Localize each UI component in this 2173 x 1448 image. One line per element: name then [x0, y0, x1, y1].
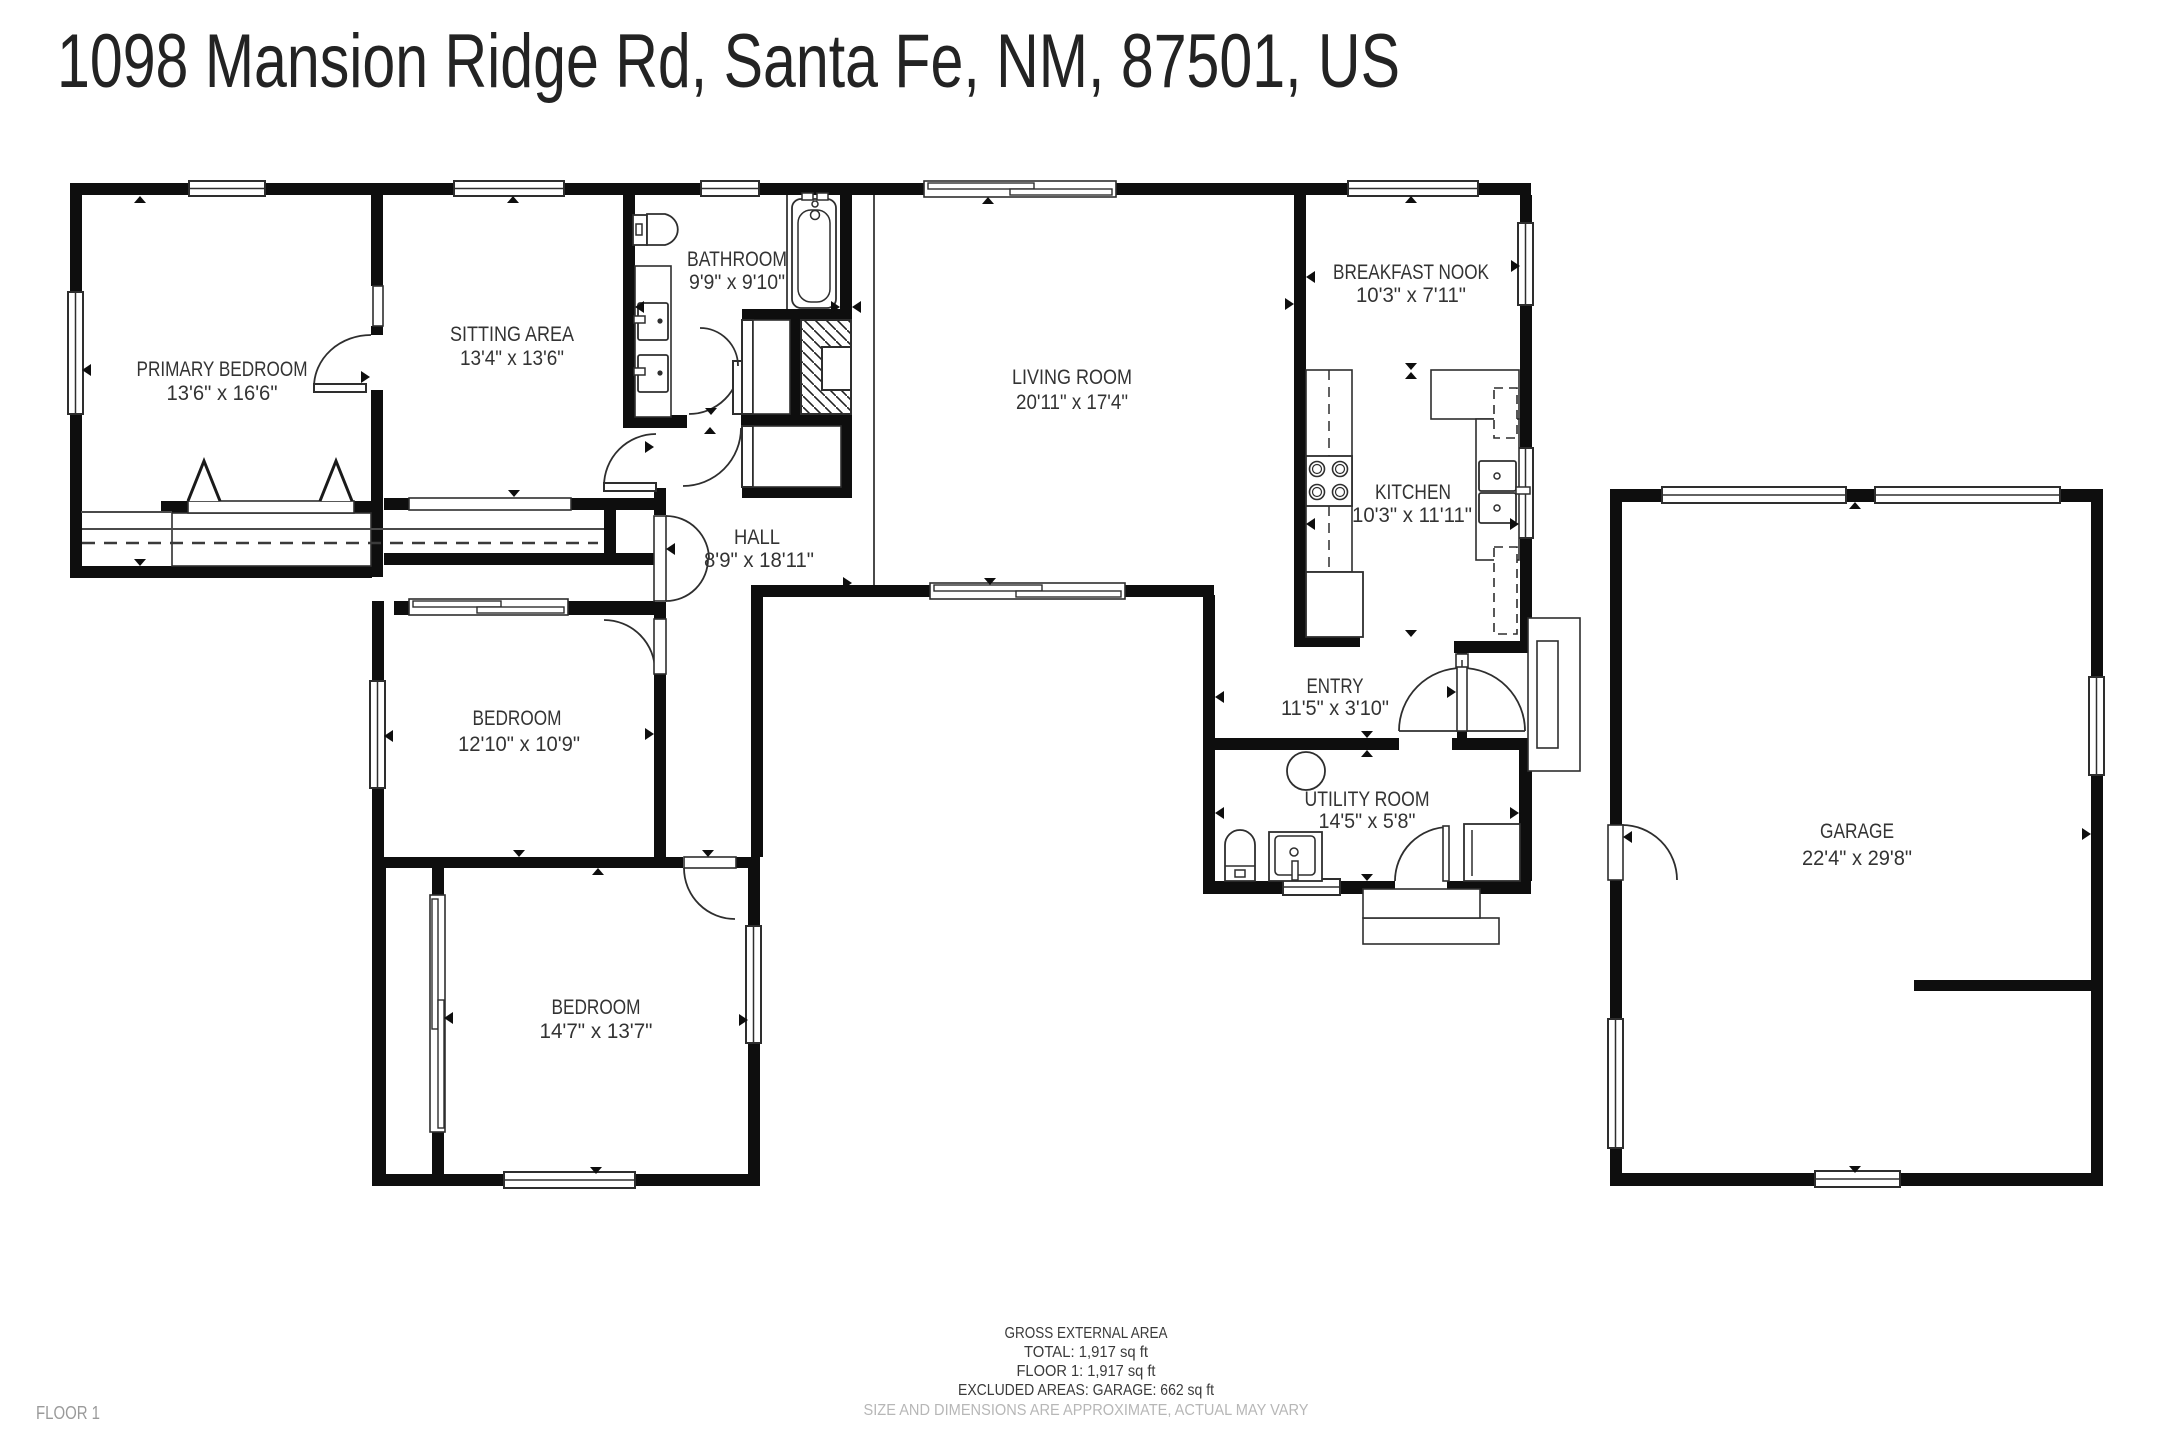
svg-text:10'3" x 7'11": 10'3" x 7'11" — [1356, 284, 1466, 307]
svg-text:BEDROOM: BEDROOM — [473, 707, 562, 730]
svg-text:EXCLUDED AREAS: GARAGE: 662 sq: EXCLUDED AREAS: GARAGE: 662 sq ft — [958, 1382, 1214, 1399]
svg-text:SITTING AREA: SITTING AREA — [450, 323, 574, 346]
svg-text:13'6" x 16'6": 13'6" x 16'6" — [167, 382, 278, 405]
svg-text:BEDROOM: BEDROOM — [552, 996, 641, 1019]
svg-text:GARAGE: GARAGE — [1820, 820, 1894, 843]
svg-text:14'7" x 13'7": 14'7" x 13'7" — [540, 1020, 653, 1043]
svg-text:LIVING ROOM: LIVING ROOM — [1012, 366, 1132, 389]
svg-text:BATHROOM: BATHROOM — [687, 248, 787, 271]
svg-text:HALL: HALL — [734, 526, 780, 549]
svg-text:BREAKFAST NOOK: BREAKFAST NOOK — [1333, 261, 1489, 284]
svg-text:11'5" x 3'10": 11'5" x 3'10" — [1281, 697, 1389, 720]
svg-text:SIZE AND DIMENSIONS ARE APPROX: SIZE AND DIMENSIONS ARE APPROXIMATE, ACT… — [864, 1402, 1309, 1419]
svg-text:FLOOR 1: 1,917 sq ft: FLOOR 1: 1,917 sq ft — [1017, 1363, 1156, 1380]
svg-text:12'10" x 10'9": 12'10" x 10'9" — [458, 733, 580, 756]
svg-text:KITCHEN: KITCHEN — [1375, 481, 1451, 504]
svg-text:20'11" x 17'4": 20'11" x 17'4" — [1016, 391, 1128, 414]
svg-text:8'9" x 18'11": 8'9" x 18'11" — [704, 549, 814, 572]
svg-text:GROSS EXTERNAL AREA: GROSS EXTERNAL AREA — [1005, 1325, 1168, 1342]
svg-text:ENTRY: ENTRY — [1307, 675, 1364, 698]
svg-text:FLOOR 1: FLOOR 1 — [36, 1403, 100, 1423]
svg-text:PRIMARY BEDROOM: PRIMARY BEDROOM — [137, 358, 308, 381]
svg-text:9'9" x 9'10": 9'9" x 9'10" — [689, 271, 785, 294]
svg-text:14'5" x 5'8": 14'5" x 5'8" — [1319, 810, 1416, 833]
svg-text:UTILITY ROOM: UTILITY ROOM — [1305, 788, 1430, 811]
svg-text:10'3" x 11'11": 10'3" x 11'11" — [1352, 504, 1472, 527]
svg-text:13'4" x 13'6": 13'4" x 13'6" — [460, 347, 564, 370]
svg-text:22'4" x 29'8": 22'4" x 29'8" — [1802, 847, 1912, 870]
svg-text:1098 Mansion Ridge Rd, Santa F: 1098 Mansion Ridge Rd, Santa Fe, NM, 875… — [57, 19, 1400, 104]
svg-text:TOTAL: 1,917 sq ft: TOTAL: 1,917 sq ft — [1024, 1344, 1149, 1361]
